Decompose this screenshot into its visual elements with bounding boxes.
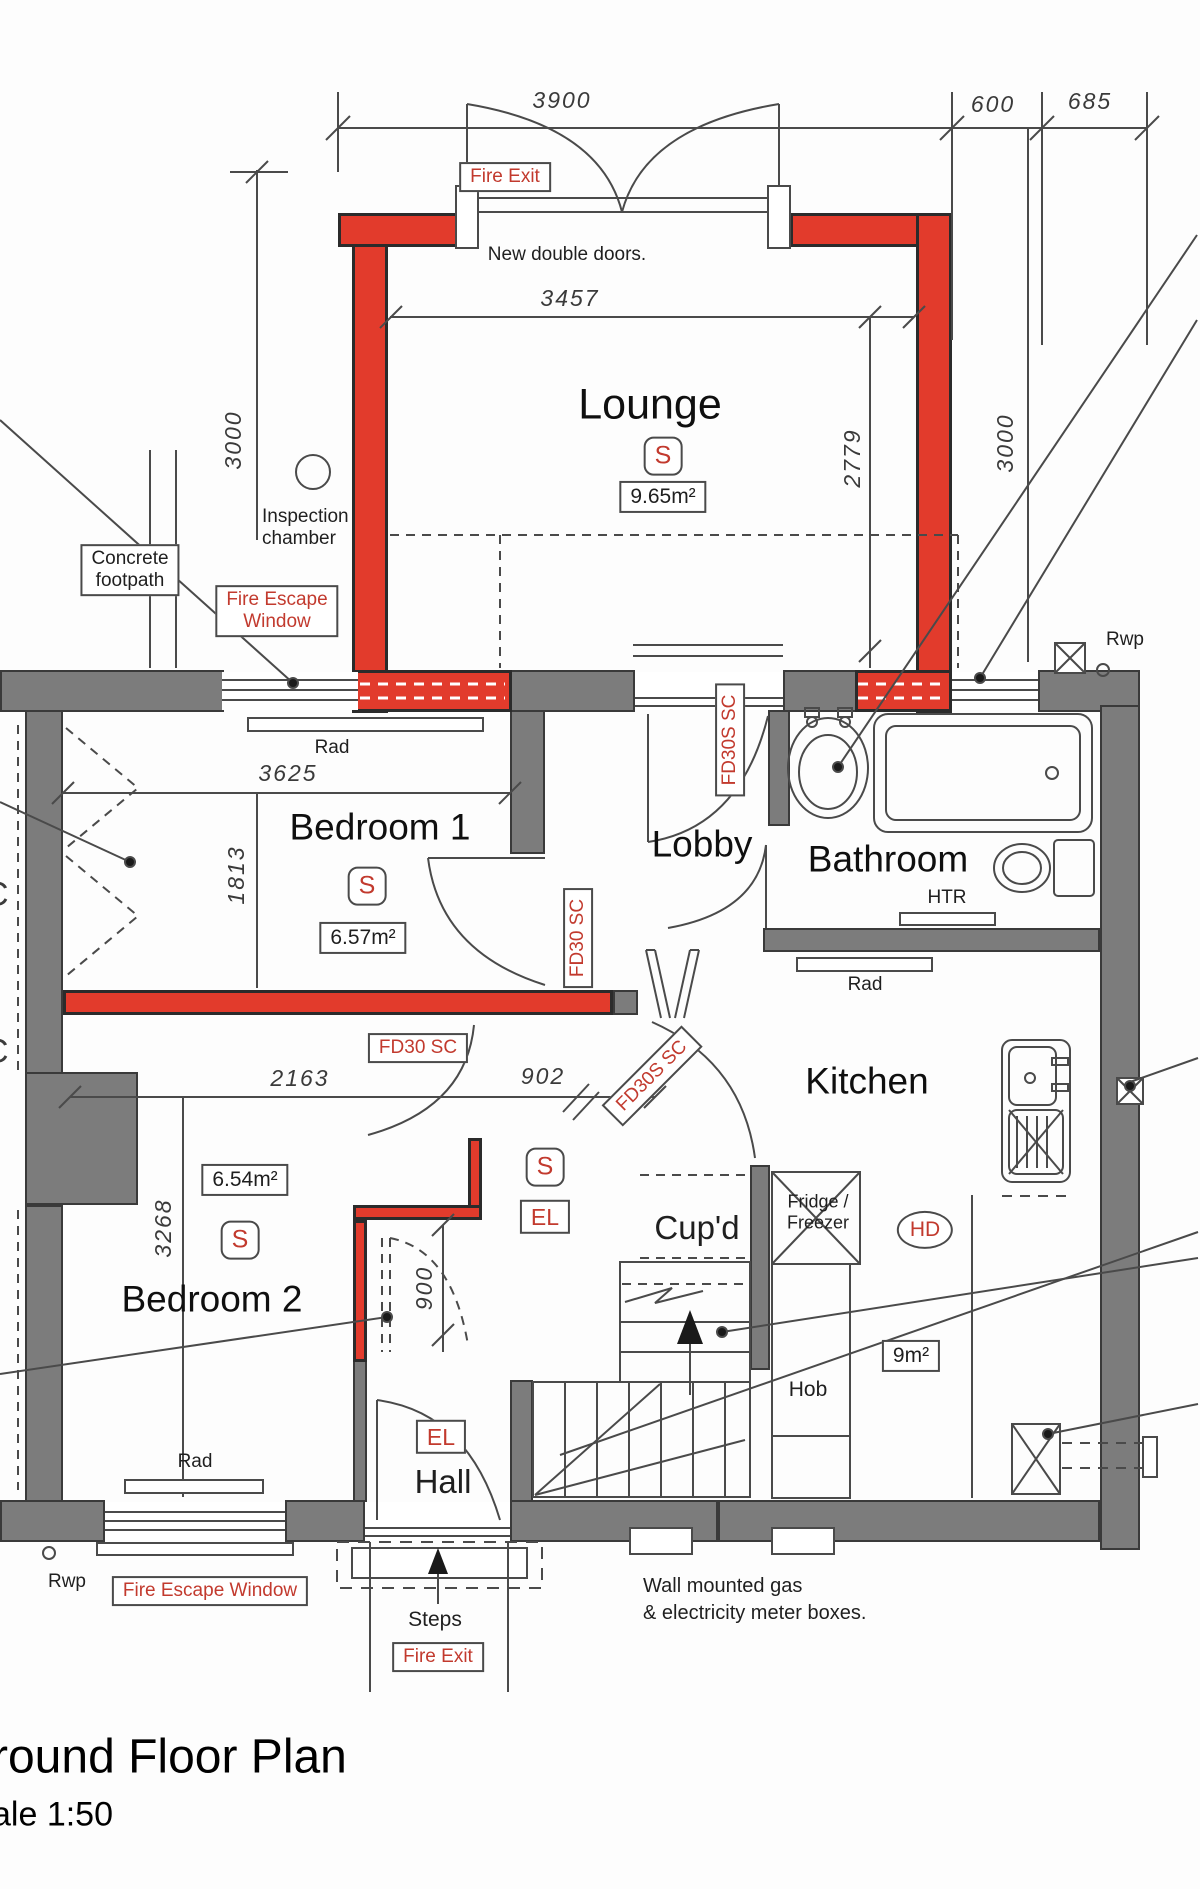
dim-3457: 3457 — [540, 285, 599, 311]
fire-escape-window-label-left: Fire Escape Window — [215, 585, 338, 637]
room-label-lobby: Lobby — [652, 824, 753, 867]
dim-3000-left: 3000 — [220, 410, 246, 469]
meter-boxes-note: Wall mounted gas & electricity meter box… — [643, 1573, 866, 1627]
room-label-kitchen: Kitchen — [805, 1061, 928, 1104]
room-label-lounge: Lounge — [578, 380, 722, 429]
area-bedroom1: 6.57m² — [319, 922, 406, 954]
dim-2779: 2779 — [839, 428, 865, 487]
fridge-freezer-label: Fridge / Freezer — [787, 1191, 849, 1232]
rwp-label-top: Rwp — [1106, 629, 1144, 651]
inspection-line1: Inspection — [262, 506, 349, 528]
fd30s-door-label-lobby: FD30S SC — [715, 684, 745, 797]
stairs — [533, 1262, 750, 1497]
el-label-innerhall: EL — [520, 1200, 570, 1234]
area-kitchen: 9m² — [882, 1340, 940, 1372]
room-label-cupboard: Cup'd — [654, 1209, 739, 1247]
kitchen-fixtures — [772, 1040, 1157, 1498]
rad-label-bedroom1: Rad — [315, 737, 350, 759]
inspection-chamber-note: Inspection chamber — [262, 506, 349, 550]
fd30-door-label-innerhall: FD30 SC — [368, 1033, 468, 1063]
dim-3000-right: 3000 — [992, 413, 1018, 472]
dim-900: 900 — [411, 1266, 437, 1310]
clipped-letter-1: C — [0, 875, 9, 914]
page-title: round Floor Plan — [0, 1729, 347, 1784]
scale-note: ale 1:50 — [0, 1795, 113, 1834]
dim-3268: 3268 — [150, 1198, 176, 1257]
rwp-label-bottom: Rwp — [48, 1571, 86, 1593]
fire-escape-line1: Fire Escape — [226, 589, 327, 611]
meters-line1: Wall mounted gas — [643, 1573, 866, 1600]
rad-label-bedroom2: Rad — [178, 1451, 213, 1473]
concrete-line1: Concrete — [91, 548, 168, 570]
dim-3900: 3900 — [532, 87, 591, 113]
floor-plan: 3900 600 685 Fire Exit New double doors.… — [0, 0, 1200, 1889]
meters-line2: & electricity meter boxes. — [643, 1600, 866, 1627]
dim-1813: 1813 — [223, 845, 249, 904]
dim-902: 902 — [521, 1063, 565, 1089]
fire-escape-line2: Window — [226, 611, 327, 633]
hob-label: Hob — [789, 1378, 828, 1402]
fd30-door-label-bedroom1: FD30 SC — [563, 888, 593, 988]
clipped-letter-2: C — [0, 1032, 9, 1071]
dim-685: 685 — [1068, 88, 1112, 114]
area-lounge: 9.65m² — [619, 481, 706, 513]
area-bedroom2: 6.54m² — [201, 1164, 288, 1196]
smoke-detector-badge-lounge: S — [644, 437, 683, 476]
inspection-line2: chamber — [262, 528, 349, 550]
fire-escape-window-label-bottom: Fire Escape Window — [112, 1576, 308, 1606]
room-label-bathroom: Bathroom — [808, 839, 968, 882]
smoke-detector-badge-bedroom2: S — [221, 1221, 260, 1260]
steps-label: Steps — [408, 1608, 462, 1632]
concrete-footpath-note: Concrete footpath — [80, 544, 179, 596]
smoke-detector-badge-bedroom1: S — [348, 867, 387, 906]
fire-exit-label-bottom: Fire Exit — [392, 1642, 484, 1672]
rwp-symbols — [43, 643, 1143, 1559]
new-double-doors-note: New double doors. — [488, 244, 646, 266]
htr-label: HTR — [927, 887, 966, 909]
room-label-bedroom2: Bedroom 2 — [122, 1279, 303, 1322]
dim-600: 600 — [971, 91, 1015, 117]
smoke-detector-badge-hall: S — [526, 1148, 565, 1187]
room-label-hall: Hall — [415, 1463, 472, 1501]
dim-2163: 2163 — [270, 1065, 329, 1091]
concrete-line2: footpath — [91, 570, 168, 592]
room-label-bedroom1: Bedroom 1 — [290, 807, 471, 850]
fridge-line2: Freezer — [787, 1212, 849, 1233]
el-label-hall: EL — [416, 1420, 466, 1454]
dim-3625: 3625 — [258, 760, 317, 786]
rad-label-bathroom: Rad — [848, 974, 883, 996]
fire-exit-label-top: Fire Exit — [459, 162, 551, 192]
fridge-line1: Fridge / — [787, 1191, 849, 1212]
